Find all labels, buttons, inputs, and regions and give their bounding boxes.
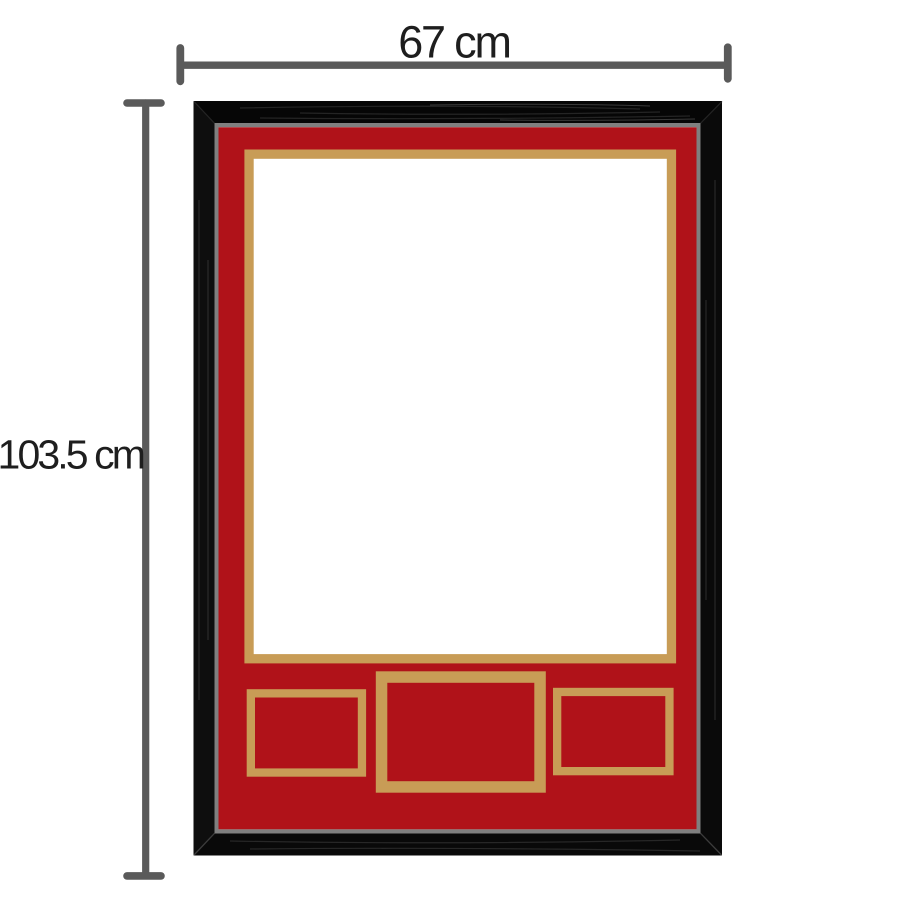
svg-text:103.5 cm: 103.5 cm xyxy=(0,432,144,478)
svg-text:67 cm: 67 cm xyxy=(398,17,510,68)
